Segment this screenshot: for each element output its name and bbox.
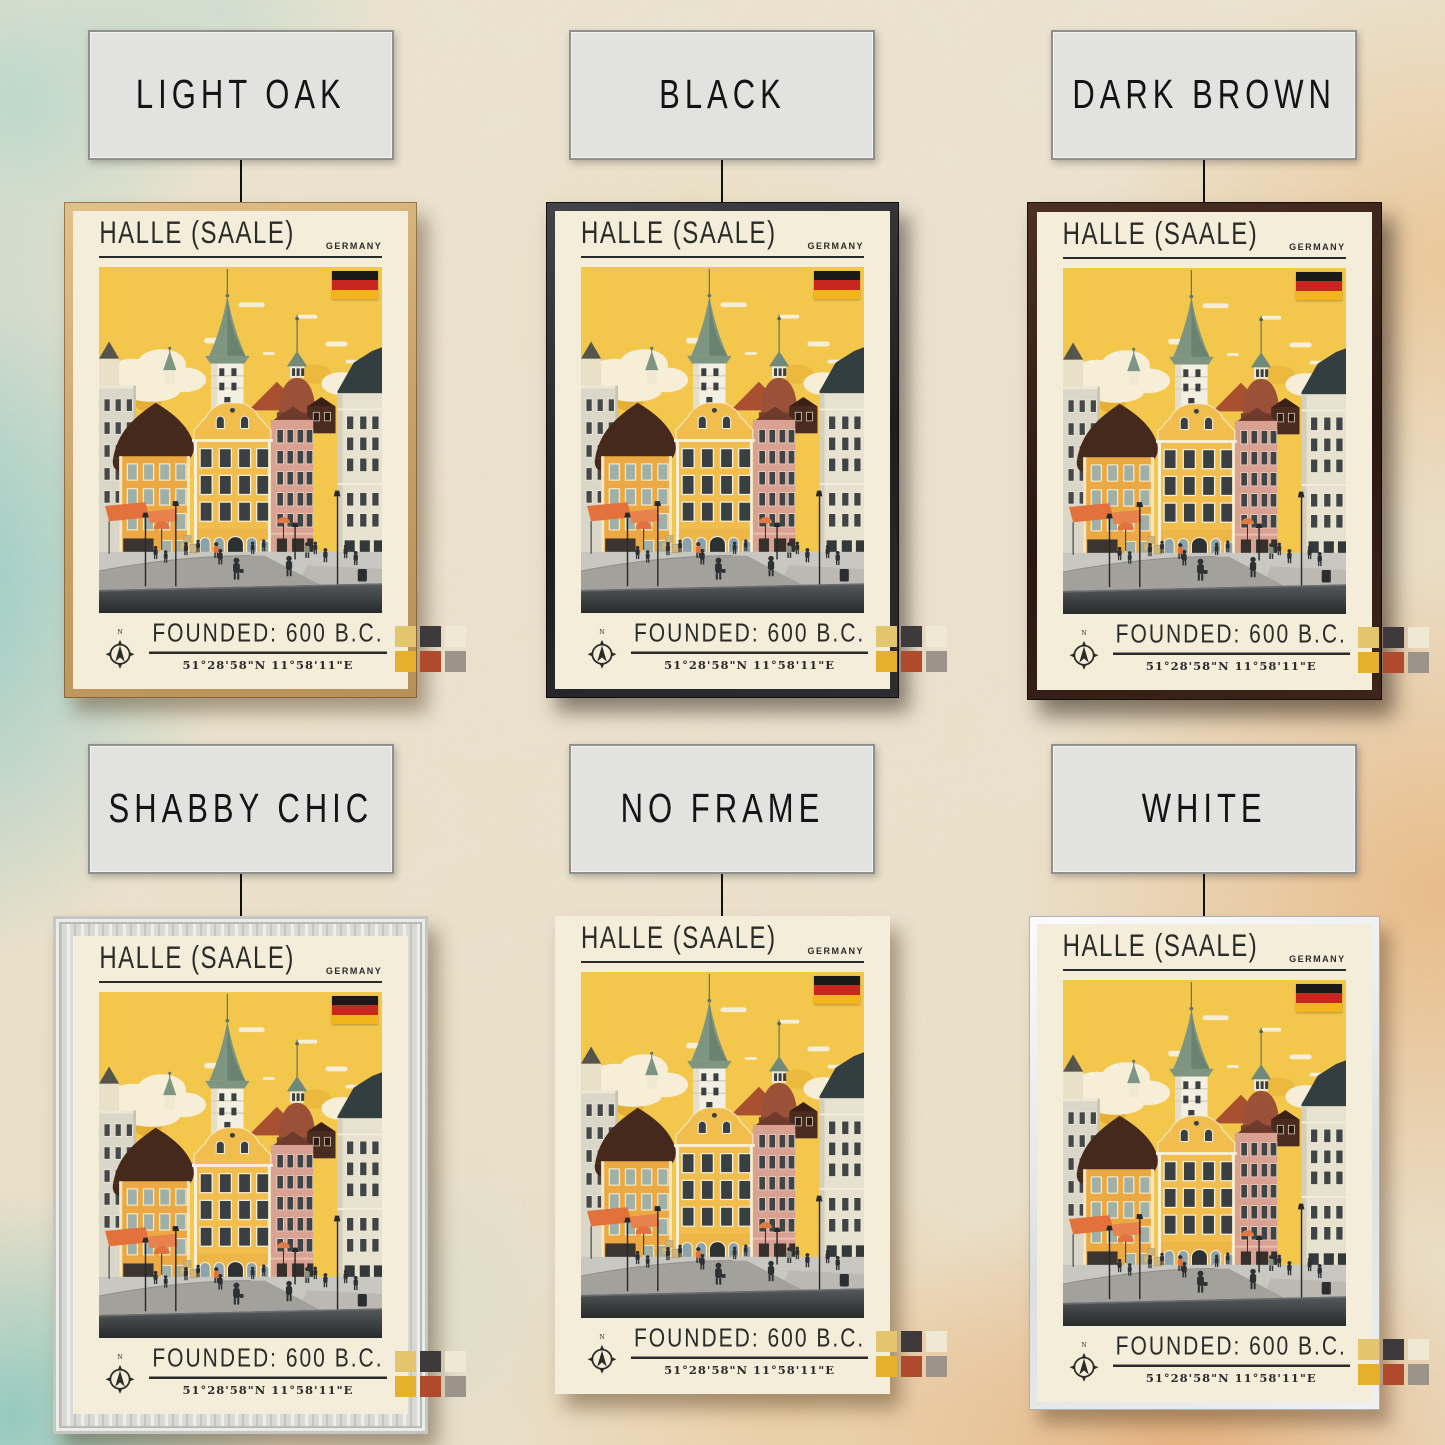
poster-header: HALLE (SAALE) GERMANY — [1063, 225, 1346, 259]
color-swatch — [926, 1356, 947, 1377]
color-swatch — [445, 1376, 466, 1397]
color-swatch — [395, 651, 416, 672]
color-swatch — [876, 1356, 897, 1377]
compass-icon: N — [99, 1351, 141, 1397]
color-swatch — [395, 626, 416, 647]
frame-option-label: WHITE — [1142, 785, 1267, 833]
founded-block: FOUNDED: 600 B.C. 51°28'58"N 11°58'11"E — [1113, 1339, 1350, 1385]
poster-art-area — [1063, 268, 1346, 614]
poster-footer: N FOUNDED: 600 B.C. 51°28'58"N 11°58'11"… — [99, 1345, 382, 1403]
poster-art-area — [581, 972, 864, 1318]
poster-country-label: GERMANY — [326, 966, 383, 976]
palette-swatch-grid — [1358, 1339, 1429, 1385]
poster-footer: N FOUNDED: 600 B.C. 51°28'58"N 11°58'11"… — [581, 620, 864, 678]
color-swatch — [420, 626, 441, 647]
color-swatch — [1358, 652, 1379, 673]
color-swatch — [395, 1376, 416, 1397]
flag-stripe-black — [1296, 984, 1342, 993]
framed-poster-black: HALLE (SAALE) GERMANY N — [546, 202, 899, 698]
poster-title: HALLE (SAALE) — [581, 921, 777, 957]
color-swatch — [420, 1351, 441, 1372]
svg-text:N: N — [1081, 630, 1087, 637]
color-swatch — [876, 626, 897, 647]
connector-line — [1203, 874, 1205, 916]
founded-block: FOUNDED: 600 B.C. 51°28'58"N 11°58'11"E — [149, 1351, 386, 1397]
framed-poster-no-frame: HALLE (SAALE) GERMANY N — [555, 916, 890, 1394]
color-swatch — [420, 1376, 441, 1397]
frame-option-card: LIGHT OAK — [88, 30, 394, 160]
compass-icon: N — [1063, 627, 1105, 673]
poster-country-label: GERMANY — [326, 241, 383, 251]
flag-stripe-red — [1296, 993, 1342, 1002]
color-swatch — [926, 651, 947, 672]
poster-footer: N FOUNDED: 600 B.C. 51°28'58"N 11°58'11"… — [1063, 621, 1346, 679]
founded-text: FOUNDED: 600 B.C. — [631, 619, 868, 654]
poster-title: HALLE (SAALE) — [99, 216, 295, 252]
flag-stripe-black — [1296, 272, 1342, 281]
color-swatch — [901, 1356, 922, 1377]
coordinates-text: 51°28'58"N 11°58'11"E — [1113, 659, 1350, 673]
poster-header: HALLE (SAALE) GERMANY — [99, 949, 382, 983]
svg-text:N: N — [118, 1354, 124, 1361]
frame-variant-cell: SHABBY CHIC HALLE (SAALE) GERMANY — [53, 744, 428, 1434]
frame-variant-cell: BLACK HALLE (SAALE) GERMANY — [546, 30, 899, 700]
frame-option-card: WHITE — [1051, 744, 1357, 874]
frame-option-card: DARK BROWN — [1051, 30, 1357, 160]
product-mockup-canvas: LIGHT OAK HALLE (SAALE) GERMANY — [0, 0, 1445, 1445]
germany-flag-icon — [814, 976, 860, 1004]
color-swatch — [901, 626, 922, 647]
framed-poster-dark-brown: HALLE (SAALE) GERMANY N — [1027, 202, 1382, 700]
cityscape-illustration — [581, 267, 864, 613]
svg-text:N: N — [118, 629, 124, 636]
color-swatch — [420, 651, 441, 672]
connector-line — [721, 874, 723, 916]
frame-option-card: BLACK — [569, 30, 875, 160]
poster-country-label: GERMANY — [1289, 954, 1346, 964]
germany-flag-icon — [1296, 272, 1342, 300]
founded-block: FOUNDED: 600 B.C. 51°28'58"N 11°58'11"E — [631, 626, 868, 672]
poster: HALLE (SAALE) GERMANY N — [73, 936, 408, 1414]
germany-flag-icon — [1296, 984, 1342, 1012]
frame-variant-cell: NO FRAME HALLE (SAALE) GERMANY — [555, 744, 890, 1434]
flag-stripe-red — [1296, 281, 1342, 290]
frame-variant-cell: DARK BROWN HALLE (SAALE) GERMANY — [1027, 30, 1382, 700]
germany-flag-icon — [814, 271, 860, 299]
color-swatch — [926, 626, 947, 647]
color-swatch — [876, 651, 897, 672]
poster-footer: N FOUNDED: 600 B.C. 51°28'58"N 11°58'11"… — [99, 620, 382, 678]
cityscape-illustration — [99, 267, 382, 613]
coordinates-text: 51°28'58"N 11°58'11"E — [149, 658, 386, 672]
flag-stripe-red — [814, 985, 860, 994]
color-swatch — [901, 651, 922, 672]
color-swatch — [1358, 1364, 1379, 1385]
frame-option-label: BLACK — [659, 71, 786, 119]
svg-text:N: N — [1081, 1342, 1087, 1349]
poster-country-label: GERMANY — [807, 241, 864, 251]
poster-art-area — [1063, 980, 1346, 1326]
coordinates-text: 51°28'58"N 11°58'11"E — [1113, 1371, 1350, 1385]
color-swatch — [926, 1331, 947, 1352]
founded-text: FOUNDED: 600 B.C. — [631, 1324, 868, 1359]
coordinates-text: 51°28'58"N 11°58'11"E — [631, 658, 868, 672]
palette-swatch-grid — [876, 1331, 947, 1377]
palette-swatch-grid — [1358, 627, 1429, 673]
coordinates-text: 51°28'58"N 11°58'11"E — [149, 1383, 386, 1397]
palette-swatch-grid — [876, 626, 947, 672]
color-swatch — [1408, 1339, 1429, 1360]
founded-text: FOUNDED: 600 B.C. — [149, 619, 386, 654]
color-swatch — [1408, 627, 1429, 648]
color-swatch — [1383, 1364, 1404, 1385]
color-swatch — [1408, 1364, 1429, 1385]
color-swatch — [1383, 1339, 1404, 1360]
flag-stripe-red — [332, 280, 378, 289]
color-swatch — [876, 1331, 897, 1352]
poster-title: HALLE (SAALE) — [581, 216, 777, 252]
compass-icon: N — [581, 626, 623, 672]
cityscape-illustration — [581, 972, 864, 1318]
poster-country-label: GERMANY — [1289, 242, 1346, 252]
color-swatch — [445, 1351, 466, 1372]
flag-stripe-gold — [332, 290, 378, 299]
germany-flag-icon — [332, 996, 378, 1024]
connector-line — [721, 160, 723, 202]
cityscape-illustration — [1063, 980, 1346, 1326]
founded-block: FOUNDED: 600 B.C. 51°28'58"N 11°58'11"E — [1113, 627, 1350, 673]
flag-stripe-gold — [814, 995, 860, 1004]
poster-country-label: GERMANY — [807, 946, 864, 956]
framed-poster-shabby-chic: HALLE (SAALE) GERMANY N — [53, 916, 428, 1434]
poster: HALLE (SAALE) GERMANY N — [555, 211, 890, 689]
frame-option-label: NO FRAME — [621, 785, 825, 833]
cityscape-illustration — [99, 992, 382, 1338]
poster-header: HALLE (SAALE) GERMANY — [581, 929, 864, 963]
color-swatch — [1383, 652, 1404, 673]
palette-swatch-grid — [395, 1351, 466, 1397]
svg-text:N: N — [599, 629, 605, 636]
founded-block: FOUNDED: 600 B.C. 51°28'58"N 11°58'11"E — [631, 1331, 868, 1377]
color-swatch — [1358, 1339, 1379, 1360]
poster-header: HALLE (SAALE) GERMANY — [1063, 937, 1346, 971]
poster-header: HALLE (SAALE) GERMANY — [99, 224, 382, 258]
frame-variant-cell: LIGHT OAK HALLE (SAALE) GERMANY — [64, 30, 417, 700]
framed-poster-white: HALLE (SAALE) GERMANY N — [1029, 916, 1380, 1410]
palette-swatch-grid — [395, 626, 466, 672]
germany-flag-icon — [332, 271, 378, 299]
poster-footer: N FOUNDED: 600 B.C. 51°28'58"N 11°58'11"… — [1063, 1333, 1346, 1391]
poster-title: HALLE (SAALE) — [99, 941, 295, 977]
flag-stripe-gold — [332, 1015, 378, 1024]
poster: HALLE (SAALE) GERMANY N — [555, 916, 890, 1394]
founded-block: FOUNDED: 600 B.C. 51°28'58"N 11°58'11"E — [149, 626, 386, 672]
frame-option-label: DARK BROWN — [1072, 71, 1336, 119]
color-swatch — [445, 651, 466, 672]
flag-stripe-gold — [1296, 291, 1342, 300]
poster-art-area — [581, 267, 864, 613]
connector-line — [240, 160, 242, 202]
color-swatch — [1358, 627, 1379, 648]
flag-stripe-black — [814, 976, 860, 985]
color-swatch — [901, 1331, 922, 1352]
founded-text: FOUNDED: 600 B.C. — [1113, 1332, 1350, 1367]
color-swatch — [445, 626, 466, 647]
frame-option-card: SHABBY CHIC — [88, 744, 394, 874]
color-swatch — [1383, 627, 1404, 648]
flag-stripe-black — [332, 271, 378, 280]
connector-line — [240, 874, 242, 916]
poster: HALLE (SAALE) GERMANY N — [1037, 212, 1372, 690]
color-swatch — [1408, 652, 1429, 673]
poster-title: HALLE (SAALE) — [1063, 217, 1259, 253]
poster: HALLE (SAALE) GERMANY N — [1037, 924, 1372, 1402]
framed-poster-light-oak: HALLE (SAALE) GERMANY N — [64, 202, 417, 698]
poster-title: HALLE (SAALE) — [1063, 929, 1259, 965]
compass-icon: N — [1063, 1339, 1105, 1385]
cityscape-illustration — [1063, 268, 1346, 614]
frame-option-label: LIGHT OAK — [136, 71, 346, 119]
founded-text: FOUNDED: 600 B.C. — [149, 1344, 386, 1379]
svg-text:N: N — [599, 1334, 605, 1341]
flag-stripe-black — [332, 996, 378, 1005]
compass-icon: N — [99, 626, 141, 672]
connector-line — [1203, 160, 1205, 202]
flag-stripe-gold — [1296, 1003, 1342, 1012]
poster-art-area — [99, 992, 382, 1338]
poster-art-area — [99, 267, 382, 613]
product-board: LIGHT OAK HALLE (SAALE) GERMANY — [0, 0, 1445, 1445]
frame-variant-cell: WHITE HALLE (SAALE) GERMANY — [1029, 744, 1380, 1434]
coordinates-text: 51°28'58"N 11°58'11"E — [631, 1363, 868, 1377]
frame-option-label: SHABBY CHIC — [109, 785, 374, 833]
flag-stripe-gold — [814, 290, 860, 299]
flag-stripe-red — [332, 1005, 378, 1014]
poster: HALLE (SAALE) GERMANY N — [73, 211, 408, 689]
poster-header: HALLE (SAALE) GERMANY — [581, 224, 864, 258]
flag-stripe-black — [814, 271, 860, 280]
frame-option-card: NO FRAME — [569, 744, 875, 874]
founded-text: FOUNDED: 600 B.C. — [1113, 620, 1350, 655]
flag-stripe-red — [814, 280, 860, 289]
compass-icon: N — [581, 1331, 623, 1377]
color-swatch — [395, 1351, 416, 1372]
poster-footer: N FOUNDED: 600 B.C. 51°28'58"N 11°58'11"… — [581, 1325, 864, 1383]
